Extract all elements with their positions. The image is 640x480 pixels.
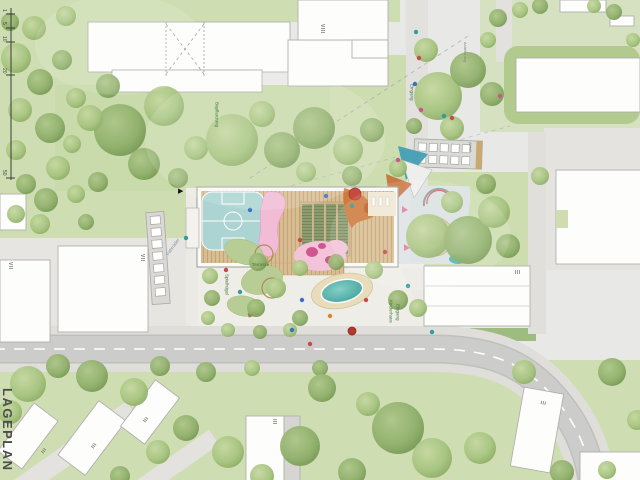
tree	[202, 268, 218, 284]
person-marker	[442, 114, 446, 118]
person-marker	[290, 328, 294, 332]
tree	[7, 205, 25, 223]
tree	[266, 278, 286, 298]
note-eingang-south: Eingang	[395, 304, 400, 321]
tree	[489, 9, 507, 27]
tree	[6, 140, 26, 160]
scale-tick-20: 20	[1, 68, 6, 74]
tree	[253, 325, 267, 339]
scale-tick-1: 1	[1, 9, 6, 12]
tree	[46, 156, 70, 180]
note-abfall: Abfall	[468, 142, 472, 152]
floor-label-iii-6: III	[540, 401, 547, 407]
tree	[412, 438, 452, 478]
tree	[76, 360, 108, 392]
tree	[34, 188, 58, 212]
tree	[512, 360, 536, 384]
tree	[204, 290, 220, 306]
person-marker	[300, 298, 304, 302]
tree	[120, 378, 148, 406]
site-plan-drawing	[0, 0, 640, 480]
tree	[308, 374, 336, 402]
tree	[46, 354, 70, 378]
person-marker	[298, 238, 302, 242]
tree	[292, 260, 308, 276]
tree	[173, 415, 199, 441]
tree	[30, 214, 50, 234]
tree	[606, 4, 622, 20]
note-eingang-north: Eingang	[409, 84, 414, 101]
floor-label-viii: VIII	[319, 24, 324, 34]
tree	[598, 461, 616, 479]
floor-label-iii-2: III	[271, 419, 276, 425]
person-marker	[430, 330, 434, 334]
tree	[150, 356, 170, 376]
tree	[312, 360, 328, 376]
tree	[35, 113, 65, 143]
note-kinderhaus: Kinderhaus	[388, 300, 393, 323]
plan-title: LAGEPLAN	[1, 388, 14, 472]
person-marker	[224, 268, 228, 272]
tree	[598, 358, 626, 386]
tree	[27, 69, 53, 95]
tree	[280, 426, 320, 466]
note-terrasse: Terrasse	[252, 263, 269, 268]
tree	[221, 323, 235, 337]
scale-tick-10: 10	[1, 36, 6, 42]
tree	[480, 32, 496, 48]
floor-label-vii-2: VII	[7, 262, 12, 270]
tree	[16, 174, 36, 194]
tree	[63, 135, 81, 153]
tree	[244, 360, 260, 376]
floor-label-vii-1: VII	[139, 254, 144, 262]
person-marker	[414, 30, 418, 34]
tree	[67, 185, 85, 203]
tree	[212, 436, 244, 468]
person-marker	[396, 158, 400, 162]
tree	[292, 310, 308, 326]
tree	[10, 366, 46, 402]
tree	[77, 105, 103, 131]
tree	[531, 167, 549, 185]
person-marker	[498, 94, 502, 98]
person-marker	[417, 56, 421, 60]
tree	[88, 172, 108, 192]
tree	[78, 214, 94, 230]
person-marker	[328, 314, 332, 318]
tree	[66, 88, 86, 108]
tree	[146, 440, 170, 464]
tree	[409, 299, 427, 317]
tree	[406, 118, 422, 134]
tree	[247, 299, 265, 317]
scale-tick-5: 5	[1, 22, 6, 25]
person-marker	[450, 116, 454, 120]
entrance-marker	[348, 327, 356, 335]
tree	[626, 33, 640, 47]
tree	[356, 392, 380, 416]
tree	[464, 432, 496, 464]
note-spielhuegel: Spielhügel	[224, 274, 229, 295]
tree	[512, 2, 528, 18]
tree	[94, 104, 146, 156]
tree	[476, 174, 496, 194]
person-marker	[419, 108, 423, 112]
tree	[450, 52, 486, 88]
scale-tick-50: 50	[1, 170, 6, 176]
tree	[196, 362, 216, 382]
tree	[8, 98, 32, 122]
tree	[201, 311, 215, 325]
person-marker	[308, 342, 312, 346]
floor-label-iii-1: III	[515, 271, 521, 276]
person-marker	[238, 290, 242, 294]
note-bepflanzung: Bepflanzung	[214, 102, 219, 127]
person-marker	[184, 236, 188, 240]
site-plan-canvas: LAGEPLAN15102050VIIIVIIVIIIIIIIIIIIIIIII…	[0, 0, 640, 480]
entrance-arrow: ▶	[178, 188, 183, 195]
person-marker	[364, 298, 368, 302]
note-anlieferung: Anlieferung	[463, 42, 467, 62]
